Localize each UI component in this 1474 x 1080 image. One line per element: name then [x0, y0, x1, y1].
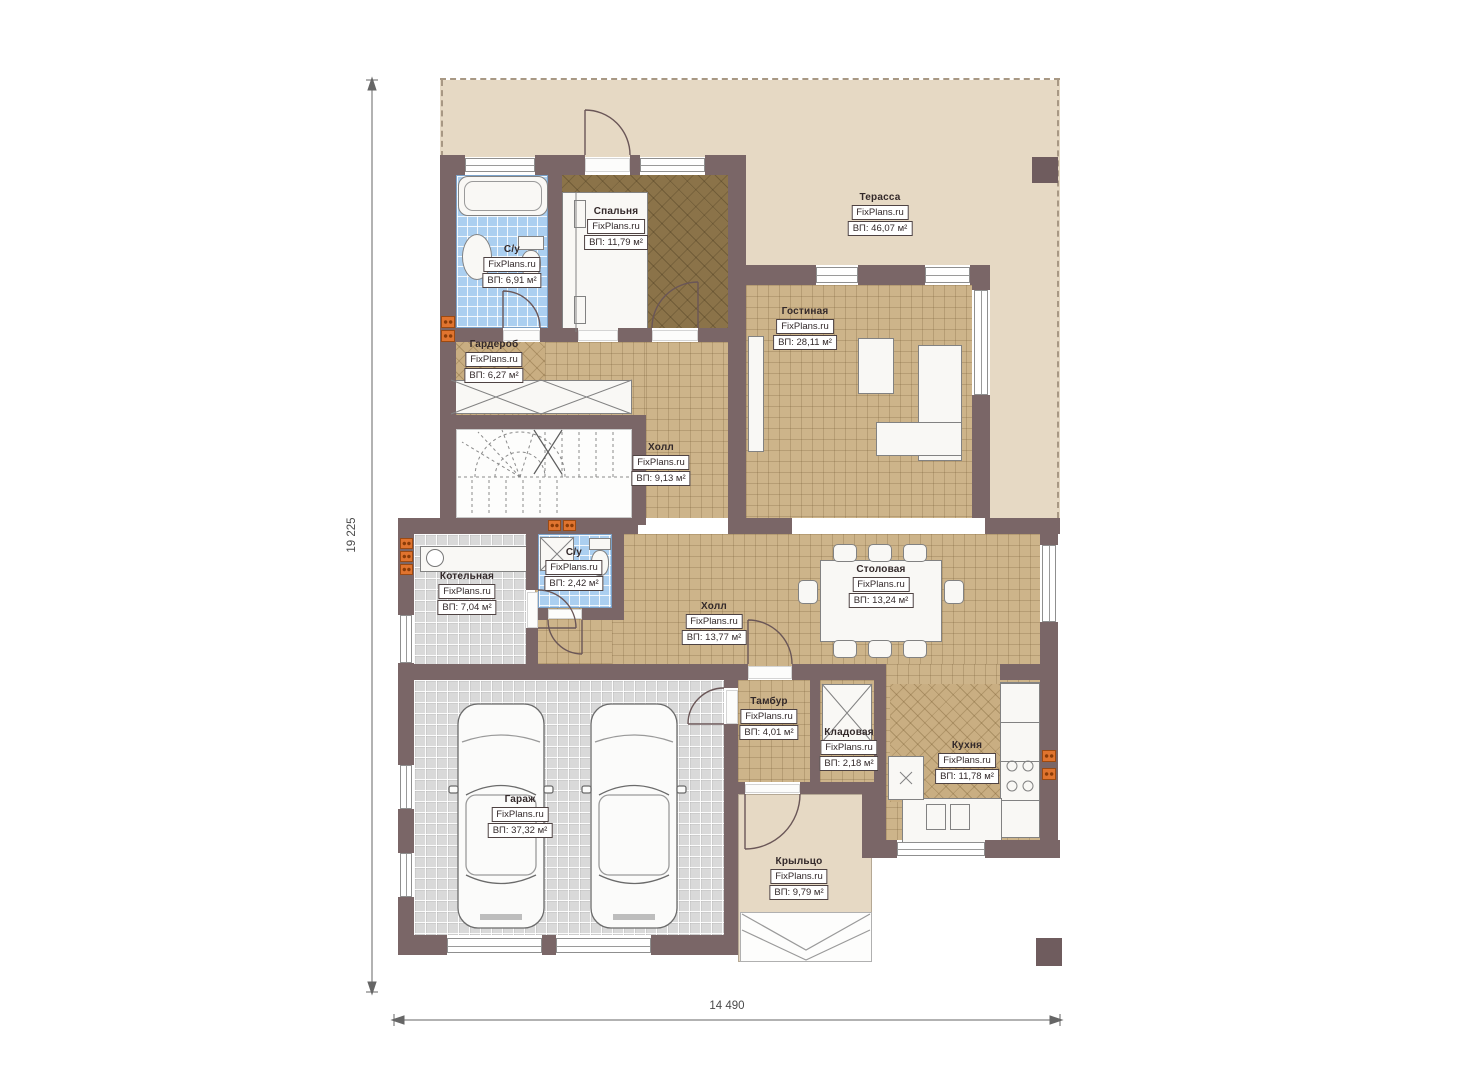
room-label-porch: Крыльцо FixPlans.ru ВП: 9,79 м² [769, 856, 828, 900]
door-opening [548, 609, 582, 619]
room-name: Крыльцо [769, 856, 828, 868]
window [400, 615, 412, 663]
wall [724, 794, 738, 955]
wall [972, 265, 990, 290]
hall-upper-floor [646, 342, 728, 518]
room-label-terrace: Терасса FixPlans.ru ВП: 46,07 м² [848, 192, 913, 236]
room-label-bathroom: С/у FixPlans.ru ВП: 6,91 м² [482, 244, 541, 288]
chair [944, 580, 964, 604]
room-name: Столовая [849, 564, 914, 576]
room-name: Кухня [935, 740, 999, 752]
room-label-dining-room: Столовая FixPlans.ru ВП: 13,24 м² [849, 564, 914, 608]
brand-box: FixPlans.ru [776, 319, 834, 334]
door-opening [652, 330, 698, 341]
chair [903, 640, 927, 658]
floor-plan: Терасса FixPlans.ru ВП: 46,07 м² Спальня… [0, 0, 1474, 1080]
terrace-dashed-edge [1057, 80, 1059, 518]
radiator-icon [441, 330, 455, 342]
wall [858, 265, 925, 285]
brand-box: FixPlans.ru [483, 257, 541, 272]
kitchen-sink [950, 804, 970, 830]
boiler-dial [426, 549, 444, 567]
area-box: ВП: 11,79 м² [584, 235, 648, 250]
wall [724, 782, 745, 794]
pier-column [1036, 938, 1062, 966]
area-box: ВП: 7,04 м² [437, 600, 496, 615]
area-box: ВП: 4,01 м² [739, 725, 798, 740]
room-label-garage: Гараж FixPlans.ru ВП: 37,32 м² [488, 794, 553, 838]
radiator-icon [400, 551, 413, 562]
wall [440, 415, 645, 429]
brand-box: FixPlans.ru [851, 205, 909, 220]
radiator-icon [548, 520, 561, 531]
wall [618, 328, 652, 342]
room-name: Котельная [437, 571, 496, 583]
dishwasher [888, 756, 924, 800]
kitchen-sink [926, 804, 946, 830]
brand-box: FixPlans.ru [545, 560, 603, 575]
area-box: ВП: 46,07 м² [848, 221, 913, 236]
area-box: ВП: 2,18 м² [819, 756, 878, 771]
pier-column [1032, 157, 1058, 183]
wall [612, 534, 624, 608]
wall [398, 680, 414, 765]
brand-box: FixPlans.ru [632, 455, 690, 470]
window [400, 853, 412, 897]
room-name: Терасса [848, 192, 913, 204]
wall [651, 935, 738, 955]
door-opening [578, 330, 618, 341]
stairs-area [456, 429, 632, 518]
wall [972, 395, 990, 518]
room-label-wc: С/у FixPlans.ru ВП: 2,42 м² [544, 547, 603, 591]
wall [1040, 518, 1058, 545]
wall [698, 328, 746, 342]
sofa [876, 422, 962, 456]
chair [868, 640, 892, 658]
chair [903, 544, 927, 562]
room-name: Гараж [488, 794, 553, 806]
room-label-kitchen: Кухня FixPlans.ru ВП: 11,78 м² [935, 740, 999, 784]
room-label-vestibule: Тамбур FixPlans.ru ВП: 4,01 м² [739, 696, 798, 740]
kitchen-counter [1000, 682, 1040, 838]
window [925, 267, 970, 283]
room-name: Холл [682, 601, 747, 613]
radiator-icon [441, 316, 455, 328]
area-box: ВП: 9,79 м² [769, 885, 828, 900]
room-name: Тамбур [739, 696, 798, 708]
window [465, 158, 535, 172]
tv-unit [748, 336, 764, 452]
wall [540, 328, 578, 342]
area-box: ВП: 6,27 м² [464, 368, 523, 383]
window [640, 158, 705, 172]
dimension-height-label: 19 225 [346, 517, 358, 552]
chair [798, 580, 818, 604]
wall [1040, 622, 1058, 858]
area-box: ВП: 9,13 м² [631, 471, 690, 486]
wall [548, 175, 562, 328]
room-name: Гардероб [464, 339, 523, 351]
wall [526, 534, 538, 590]
brand-box: FixPlans.ru [685, 614, 743, 629]
pillow [574, 296, 586, 324]
radiator-icon [400, 564, 413, 575]
door-opening [527, 592, 538, 628]
area-box: ВП: 13,77 м² [682, 630, 747, 645]
door-opening [585, 158, 630, 172]
terrace-floor [990, 80, 1060, 518]
room-label-storage: Кладовая FixPlans.ru ВП: 2,18 м² [819, 727, 878, 771]
room-label-living-room: Гостиная FixPlans.ru ВП: 28,11 м² [773, 306, 837, 350]
room-label-hall-upper: Холл FixPlans.ru ВП: 9,13 м² [631, 442, 690, 486]
wall [728, 518, 792, 534]
wall [792, 664, 886, 680]
garage-floor [414, 680, 724, 935]
chair [833, 544, 857, 562]
wall [630, 155, 640, 175]
door-opening [726, 690, 738, 724]
wall [985, 840, 1060, 858]
wall [542, 935, 556, 955]
wall [398, 809, 414, 853]
dimension-width-label: 14 490 [709, 1000, 744, 1012]
area-box: ВП: 13,24 м² [849, 593, 914, 608]
window [1042, 545, 1056, 622]
area-box: ВП: 28,11 м² [773, 335, 837, 350]
wall [535, 155, 585, 175]
room-name: Спальня [584, 206, 648, 218]
brand-box: FixPlans.ru [740, 709, 798, 724]
room-label-boiler-room: Котельная FixPlans.ru ВП: 7,04 м² [437, 571, 496, 615]
brand-box: FixPlans.ru [852, 577, 910, 592]
door-opening [748, 666, 792, 679]
brand-box: FixPlans.ru [465, 352, 523, 367]
radiator-icon [400, 538, 413, 549]
wall [398, 518, 638, 534]
room-name: Холл [631, 442, 690, 454]
wardrobe-cabinet [451, 380, 632, 414]
wall [724, 680, 738, 688]
bathtub-inner [464, 181, 542, 211]
wall [728, 265, 816, 285]
dimension-line-horizontal [392, 1014, 1062, 1026]
wall [538, 608, 548, 620]
room-label-wardrobe: Гардероб FixPlans.ru ВП: 6,27 м² [464, 339, 523, 383]
garage-door [447, 938, 542, 953]
radiator-icon [563, 520, 576, 531]
wall [398, 664, 748, 680]
brand-box: FixPlans.ru [491, 807, 549, 822]
room-name: Гостиная [773, 306, 837, 318]
room-label-hall-main: Холл FixPlans.ru ВП: 13,77 м² [682, 601, 747, 645]
chair [868, 544, 892, 562]
terrace-dashed-edge [441, 80, 443, 157]
wall [800, 782, 874, 794]
chair [833, 640, 857, 658]
room-name: С/у [482, 244, 541, 256]
area-box: ВП: 6,91 м² [482, 273, 541, 288]
window [974, 290, 988, 395]
area-box: ВП: 37,32 м² [488, 823, 553, 838]
entrance-door-opening [745, 784, 800, 793]
garage-door [556, 938, 651, 953]
brand-box: FixPlans.ru [938, 753, 996, 768]
radiator-icon [1042, 768, 1056, 780]
brand-box: FixPlans.ru [587, 219, 645, 234]
wall [862, 788, 886, 848]
room-label-bedroom: Спальня FixPlans.ru ВП: 11,79 м² [584, 206, 648, 250]
dimension-line-vertical [366, 78, 378, 994]
wall [582, 608, 624, 620]
room-name: С/у [544, 547, 603, 559]
brand-box: FixPlans.ru [820, 740, 878, 755]
window [816, 267, 858, 283]
radiator-icon [1042, 750, 1056, 762]
wall [398, 935, 447, 955]
coffee-table [858, 338, 894, 394]
area-box: ВП: 2,42 м² [544, 576, 603, 591]
window [897, 842, 985, 856]
brand-box: FixPlans.ru [770, 869, 828, 884]
terrace-dashed-edge [440, 78, 1060, 80]
porch-steps [740, 912, 872, 962]
brand-box: FixPlans.ru [438, 584, 496, 599]
wall [862, 840, 897, 858]
area-box: ВП: 11,78 м² [935, 769, 999, 784]
room-name: Кладовая [819, 727, 878, 739]
window [400, 765, 412, 809]
